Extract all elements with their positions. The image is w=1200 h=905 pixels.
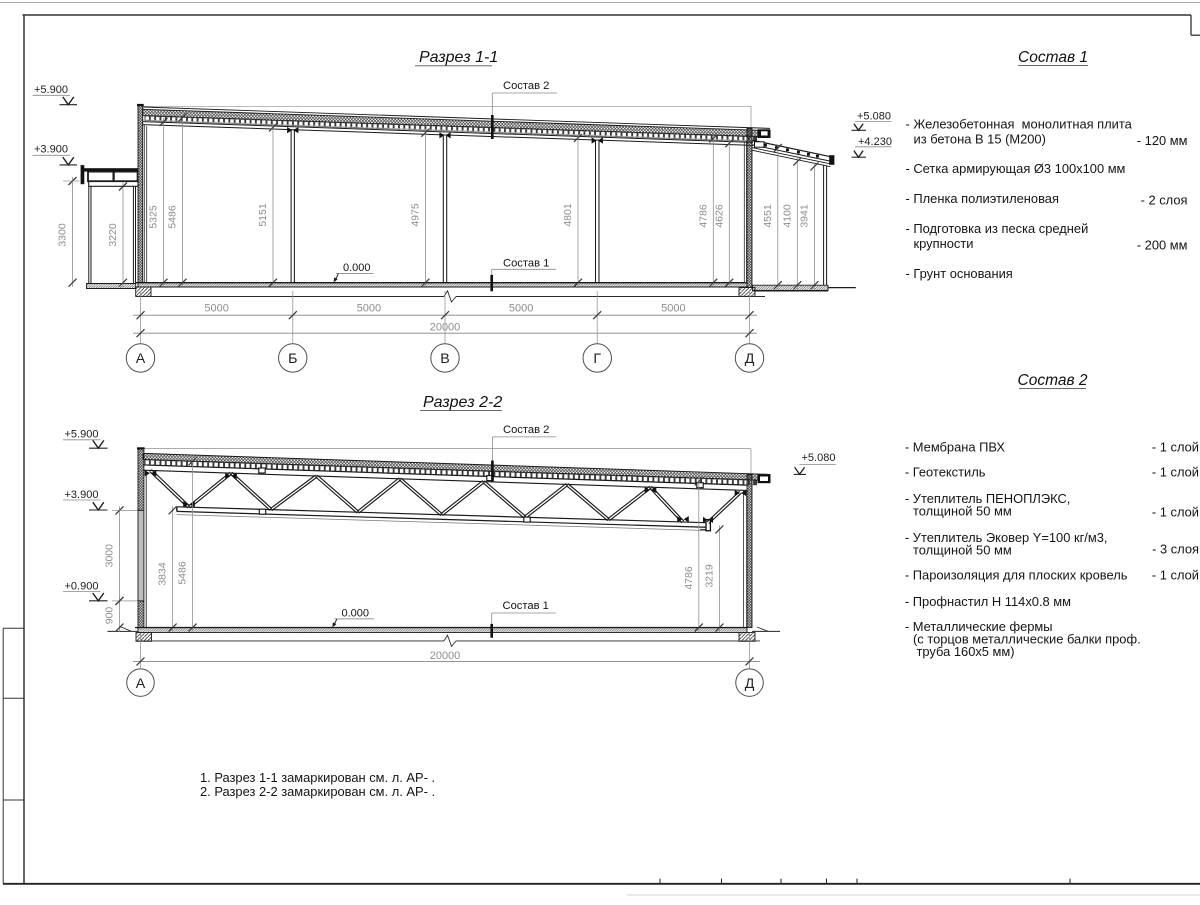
svg-text:+4.230: +4.230 xyxy=(858,136,892,148)
svg-text:5486: 5486 xyxy=(167,205,179,229)
svg-text:5000: 5000 xyxy=(357,302,381,314)
svg-text:0.000: 0.000 xyxy=(343,262,371,274)
svg-text:5325: 5325 xyxy=(148,205,160,229)
svg-text:- 1 слой: - 1 слой xyxy=(1152,439,1199,454)
svg-text:5000: 5000 xyxy=(204,302,228,314)
svg-text:Разрез 1-1: Разрез 1-1 xyxy=(419,49,498,66)
svg-text:+5.080: +5.080 xyxy=(802,452,836,464)
svg-text:из бетона В 15 (М200): из бетона В 15 (М200) xyxy=(914,132,1046,147)
svg-text:Разрез 2-2: Разрез 2-2 xyxy=(423,394,502,411)
svg-text:4100: 4100 xyxy=(781,204,793,228)
svg-text:3300: 3300 xyxy=(57,223,69,247)
svg-text:- 3 слоя: - 3 слоя xyxy=(1152,542,1199,557)
svg-text:А: А xyxy=(136,676,146,692)
svg-text:- Подготовка из песка средней: - Подготовка из песка средней xyxy=(906,221,1089,236)
svg-text:- Профнастил Н 114x0.8 мм: - Профнастил Н 114x0.8 мм xyxy=(905,594,1071,609)
svg-text:3000: 3000 xyxy=(104,544,116,568)
svg-text:- Грунт основания: - Грунт основания xyxy=(906,266,1013,281)
svg-text:4975: 4975 xyxy=(409,203,421,227)
svg-text:3220: 3220 xyxy=(107,223,119,247)
svg-text:900: 900 xyxy=(104,607,116,625)
svg-text:Состав 2: Состав 2 xyxy=(1018,372,1088,389)
svg-text:- 1 слой: - 1 слой xyxy=(1152,567,1199,582)
svg-text:4551: 4551 xyxy=(762,204,774,228)
svg-text:5000: 5000 xyxy=(661,302,685,314)
svg-text:- 200 мм: - 200 мм xyxy=(1137,238,1188,253)
svg-text:5151: 5151 xyxy=(257,203,269,227)
svg-text:- Геотекстиль: - Геотекстиль xyxy=(905,464,986,479)
svg-text:4786: 4786 xyxy=(683,566,695,590)
svg-text:толщиной 50 мм: толщиной 50 мм xyxy=(913,503,1012,518)
svg-text:- 1 слой: - 1 слой xyxy=(1152,464,1199,479)
svg-text:- Пароизоляция для плоских кро: - Пароизоляция для плоских кровель xyxy=(905,567,1128,582)
svg-text:труба 160x5 мм): труба 160x5 мм) xyxy=(917,644,1015,659)
svg-text:крупности: крупности xyxy=(914,236,974,251)
svg-text:- 120 мм: - 120 мм xyxy=(1137,133,1188,148)
svg-text:Д: Д xyxy=(745,351,755,367)
svg-text:А: А xyxy=(136,351,146,367)
svg-text:+3.900: +3.900 xyxy=(65,489,99,501)
svg-text:+5.080: +5.080 xyxy=(857,111,891,123)
svg-text:4786: 4786 xyxy=(697,204,709,228)
svg-text:5000: 5000 xyxy=(509,302,533,314)
svg-text:3834: 3834 xyxy=(157,562,169,586)
svg-text:Состав 1: Состав 1 xyxy=(1018,49,1088,66)
svg-text:- 2 слоя: - 2 слоя xyxy=(1141,193,1188,208)
svg-text:3941: 3941 xyxy=(798,204,810,228)
svg-text:- Железобетонная монолитная п: - Железобетонная монолитная плита xyxy=(906,116,1133,131)
svg-text:- 1 слой: - 1 слой xyxy=(1152,505,1199,520)
svg-text:+3.900: +3.900 xyxy=(34,143,68,155)
svg-text:Состав 1: Состав 1 xyxy=(503,600,549,612)
svg-text:+5.900: +5.900 xyxy=(34,84,68,96)
svg-text:0.000: 0.000 xyxy=(342,607,370,619)
svg-text:Состав 2: Состав 2 xyxy=(503,80,549,92)
svg-text:- Сетка армирующая Ø3 100x100: - Сетка армирующая Ø3 100x100 мм xyxy=(906,161,1126,176)
svg-text:2. Разрез 2-2 замаркирован см.: 2. Разрез 2-2 замаркирован см. л. АР- . xyxy=(200,784,435,799)
svg-text:Г: Г xyxy=(593,351,601,367)
svg-text:3219: 3219 xyxy=(703,564,715,588)
svg-text:20000: 20000 xyxy=(430,322,461,334)
svg-text:4801: 4801 xyxy=(562,203,574,227)
svg-text:20000: 20000 xyxy=(430,650,461,662)
svg-text:+0.900: +0.900 xyxy=(65,580,99,592)
svg-text:Б: Б xyxy=(288,351,297,367)
svg-text:1. Разрез 1-1 замаркирован см.: 1. Разрез 1-1 замаркирован см. л. АР- . xyxy=(200,770,435,785)
svg-text:5486: 5486 xyxy=(177,561,189,585)
svg-text:- Мембрана ПВХ: - Мембрана ПВХ xyxy=(905,439,1006,454)
svg-text:- Пленка полиэтиленовая: - Пленка полиэтиленовая xyxy=(906,191,1059,206)
svg-text:В: В xyxy=(440,351,449,367)
svg-text:Состав 2: Состав 2 xyxy=(503,424,549,436)
svg-text:Д: Д xyxy=(745,676,755,692)
svg-text:4626: 4626 xyxy=(713,204,725,228)
svg-text:толщиной 50 мм: толщиной 50 мм xyxy=(913,543,1012,558)
svg-text:Состав 1: Состав 1 xyxy=(503,258,549,270)
svg-text:+5.900: +5.900 xyxy=(65,429,99,441)
